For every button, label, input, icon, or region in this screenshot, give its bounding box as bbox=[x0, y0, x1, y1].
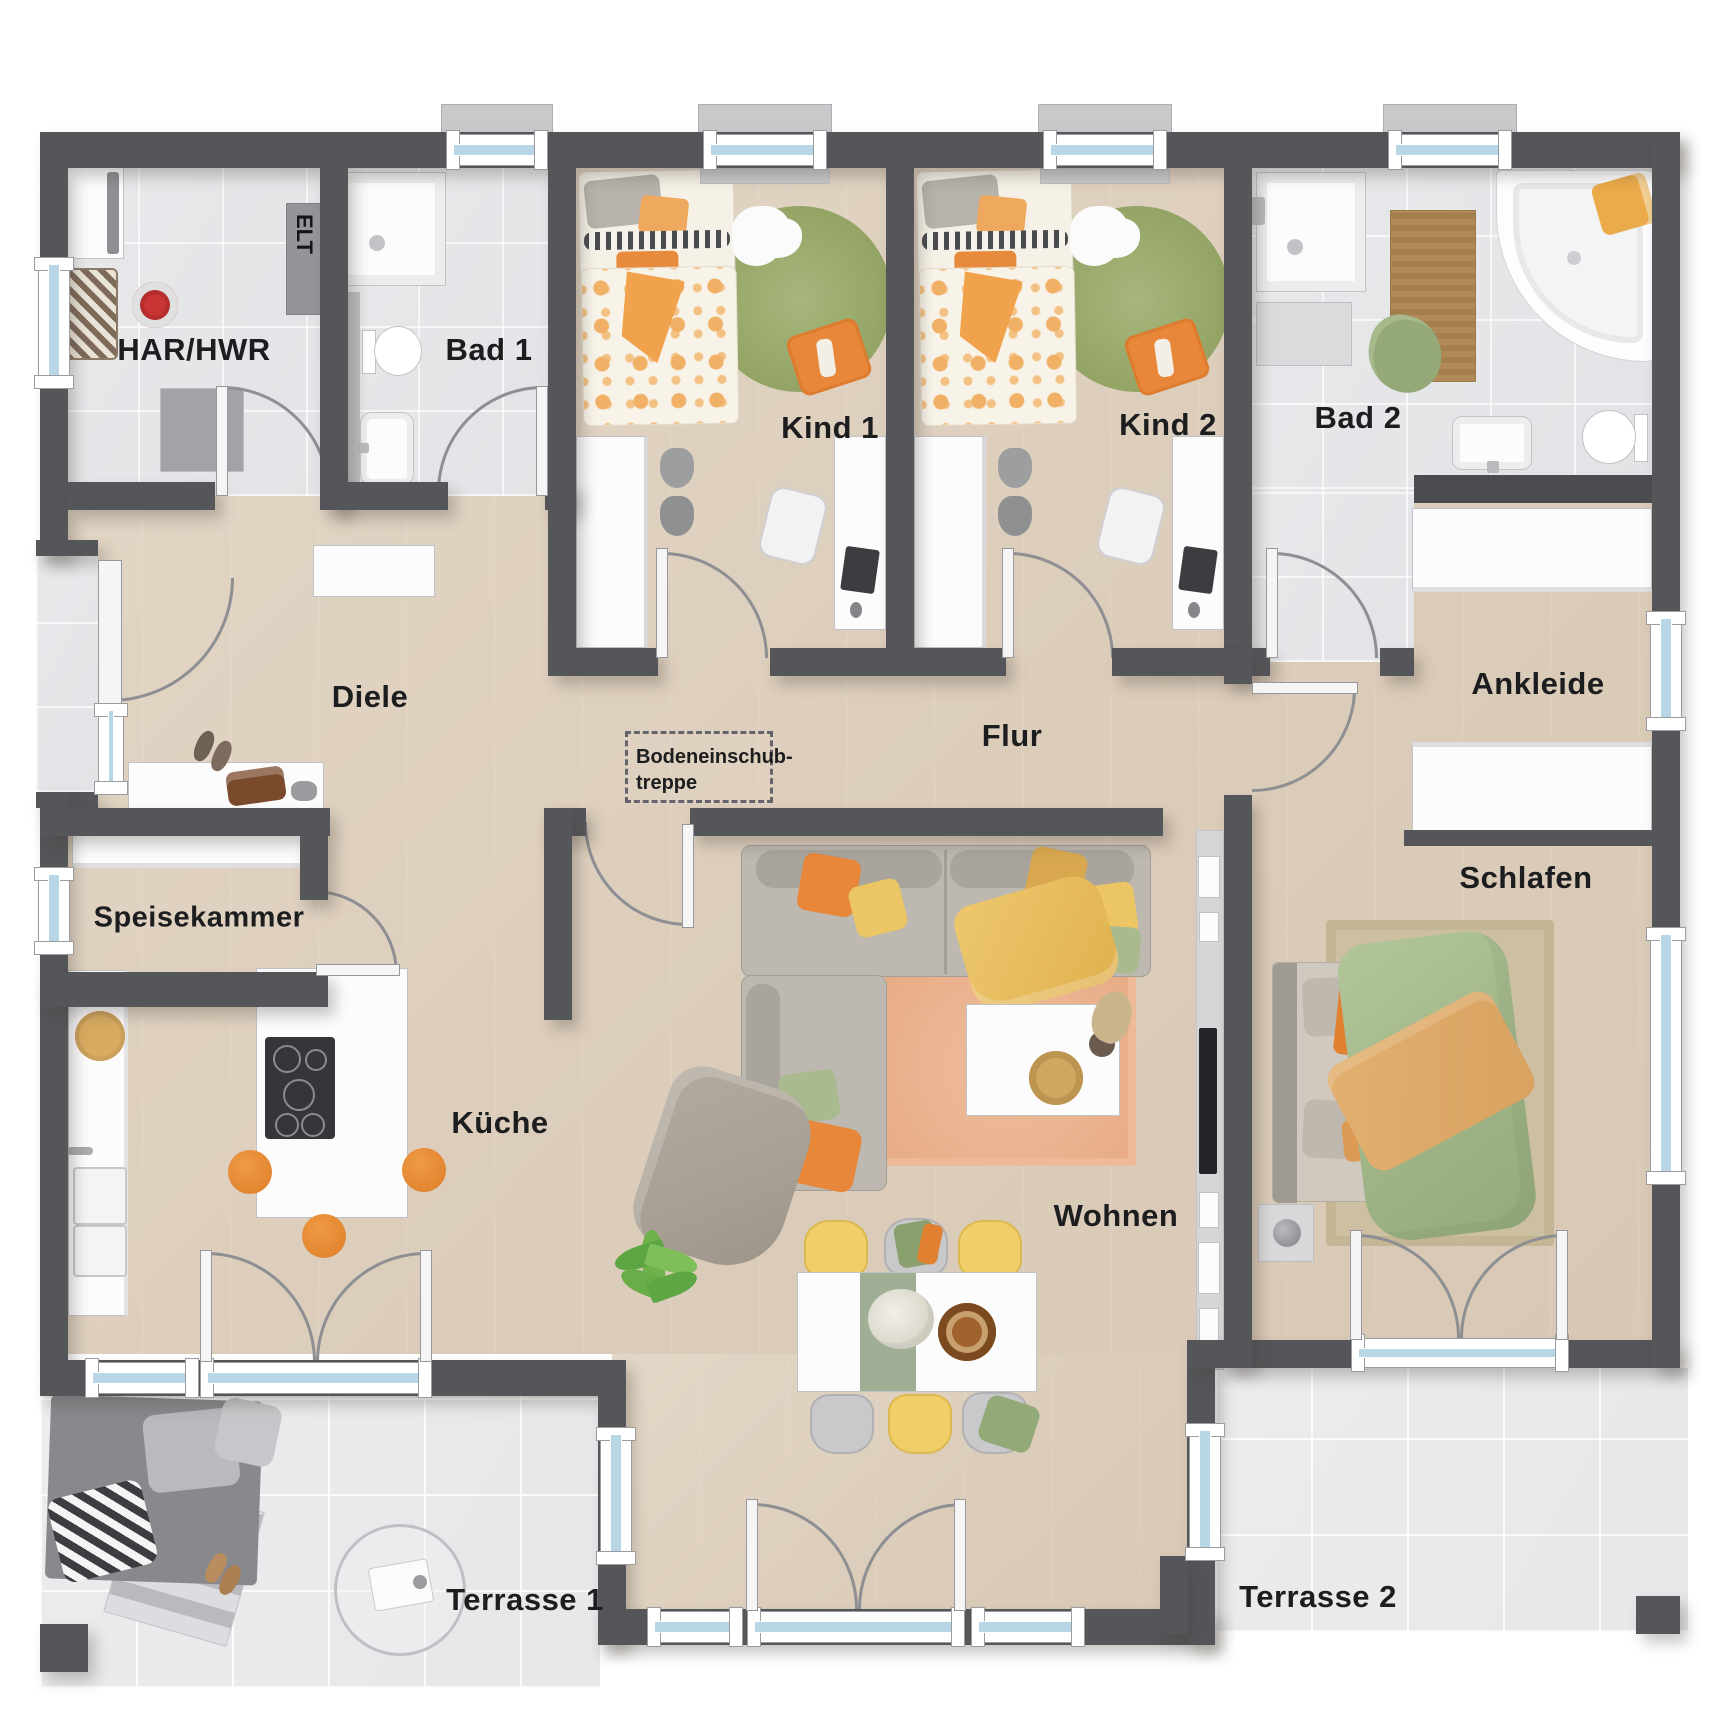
burner-icon bbox=[273, 1045, 301, 1073]
window bbox=[447, 134, 547, 166]
wall bbox=[1404, 830, 1652, 846]
hall-sideboard bbox=[128, 762, 324, 810]
bolster-pillow bbox=[584, 230, 730, 251]
door-leaf bbox=[420, 1250, 432, 1362]
decor-bowl bbox=[938, 1303, 996, 1361]
table-lamp bbox=[1273, 1219, 1301, 1247]
bar-stool-orange bbox=[302, 1214, 346, 1258]
bad2-shelf bbox=[1256, 302, 1352, 366]
room-label-bad-1: Bad 1 bbox=[446, 332, 533, 368]
shelf-decor bbox=[1199, 1192, 1219, 1228]
door-leaf bbox=[1350, 1230, 1362, 1340]
door-leaf bbox=[954, 1499, 966, 1611]
coffee-table bbox=[966, 1004, 1120, 1116]
wall bbox=[1224, 795, 1252, 1368]
gold-tray bbox=[1029, 1051, 1083, 1105]
wall bbox=[36, 540, 98, 556]
desk-kind2 bbox=[1172, 436, 1224, 630]
shelf-decor bbox=[1199, 912, 1219, 942]
window bbox=[648, 1611, 742, 1643]
red-bucket bbox=[132, 282, 178, 328]
wall bbox=[1636, 1596, 1680, 1634]
french-door-glazing bbox=[748, 1611, 964, 1643]
wall bbox=[40, 1624, 88, 1672]
door-leaf bbox=[1252, 682, 1358, 694]
dining-chair-yellow bbox=[958, 1220, 1022, 1278]
attic-stairs-box: Bodeneinschub- treppe bbox=[625, 731, 773, 803]
toy-doll bbox=[1154, 338, 1175, 378]
door-leaf bbox=[536, 386, 548, 496]
shower bbox=[1256, 172, 1366, 292]
outdoor-pillow bbox=[212, 1396, 284, 1469]
window bbox=[1650, 928, 1682, 1184]
outdoor-daybed bbox=[45, 1394, 263, 1585]
window bbox=[38, 258, 70, 388]
room-label-wohnen: Wohnen bbox=[1054, 1198, 1179, 1234]
wall bbox=[1380, 648, 1414, 676]
window bbox=[1189, 1424, 1221, 1560]
room-label-diele: Diele bbox=[332, 679, 409, 715]
sofa-seat-split bbox=[944, 850, 947, 974]
keyboard bbox=[840, 546, 880, 594]
washbasin bbox=[360, 412, 414, 486]
burner-icon bbox=[275, 1113, 299, 1137]
window-ledge bbox=[1040, 168, 1170, 184]
toy-doll bbox=[816, 338, 837, 378]
bad2-toilet bbox=[1582, 408, 1648, 466]
french-door-glazing bbox=[1352, 1338, 1568, 1368]
shoes bbox=[998, 448, 1032, 488]
window bbox=[1389, 134, 1511, 166]
burner-icon bbox=[301, 1113, 325, 1137]
dining-chair-gray bbox=[962, 1392, 1028, 1454]
mouse bbox=[1188, 602, 1200, 618]
wall bbox=[548, 168, 576, 676]
shelf-decor bbox=[1198, 856, 1220, 898]
door-leaf bbox=[316, 964, 400, 976]
wardrobe-kind1 bbox=[576, 436, 648, 648]
window bbox=[1650, 612, 1682, 730]
window-sill bbox=[1383, 104, 1517, 134]
keyboard bbox=[1178, 546, 1218, 594]
window bbox=[600, 1428, 632, 1564]
bad2-washbasin bbox=[1452, 416, 1532, 470]
headboard bbox=[1273, 963, 1297, 1203]
dining-table bbox=[797, 1272, 1037, 1392]
television bbox=[1199, 1028, 1217, 1174]
window bbox=[704, 134, 826, 166]
dining-chair-yellow bbox=[804, 1220, 868, 1278]
bar-stool-orange bbox=[228, 1150, 272, 1194]
nightstand bbox=[1258, 1204, 1314, 1262]
toilet bbox=[362, 326, 422, 376]
window bbox=[38, 868, 70, 954]
room-label-flur: Flur bbox=[982, 718, 1043, 754]
entry-sidelight bbox=[98, 704, 124, 794]
dining-chair-gray bbox=[810, 1394, 874, 1454]
entry-door-leaf bbox=[98, 560, 122, 704]
door-leaf bbox=[200, 1250, 212, 1362]
room-label-terrasse-1: Terrasse 1 bbox=[446, 1582, 604, 1618]
room-label-schlafen: Schlafen bbox=[1459, 860, 1592, 896]
wall bbox=[300, 836, 328, 900]
dining-chair-yellow bbox=[888, 1394, 952, 1454]
bed-kind2 bbox=[916, 169, 1076, 426]
tub-drain-icon bbox=[1567, 251, 1581, 265]
wall bbox=[544, 808, 572, 1020]
keys-decor bbox=[291, 781, 317, 801]
toilet-bowl bbox=[374, 326, 422, 376]
wall bbox=[690, 808, 1163, 836]
door-leaf bbox=[746, 1499, 758, 1611]
shower bbox=[336, 172, 446, 286]
door-leaf bbox=[682, 824, 694, 928]
window-sill bbox=[1038, 104, 1172, 134]
washer-drum-icon bbox=[107, 172, 119, 254]
laundry-basket bbox=[64, 268, 118, 360]
faucet-icon bbox=[1487, 461, 1499, 473]
wall bbox=[68, 482, 215, 510]
kitchen-counter-left bbox=[68, 970, 128, 1316]
striped-pillow bbox=[46, 1478, 160, 1585]
toilet-cistern bbox=[1634, 414, 1648, 462]
door-leaf bbox=[216, 386, 228, 496]
shower-drain-icon bbox=[369, 235, 385, 251]
sh ower-drain-icon bbox=[1287, 239, 1303, 255]
wall bbox=[886, 168, 914, 648]
elt-cabinet: ELT bbox=[286, 203, 322, 315]
bad2-vanity-wall bbox=[1414, 475, 1652, 503]
window-ledge bbox=[700, 168, 830, 184]
window-sill bbox=[698, 104, 832, 134]
window bbox=[86, 1362, 198, 1394]
shelf-decor bbox=[1198, 1242, 1220, 1294]
door-leaf bbox=[1556, 1230, 1568, 1340]
window bbox=[972, 1611, 1084, 1643]
room-label-kind-1: Kind 1 bbox=[781, 410, 879, 446]
hall-bench bbox=[313, 545, 435, 597]
room-label-bad-2: Bad 2 bbox=[1315, 400, 1402, 436]
potted-plant bbox=[608, 1228, 700, 1324]
room-label-speisekammer: Speisekammer bbox=[94, 902, 305, 935]
wardrobe-bottom bbox=[1412, 742, 1652, 832]
desk-kind1 bbox=[834, 436, 886, 630]
wall bbox=[330, 482, 448, 510]
room-label-har-hwr: HAR/HWR bbox=[117, 332, 270, 368]
kitchen-sink bbox=[73, 1225, 127, 1277]
room-label-terrasse-2: Terrasse 2 bbox=[1239, 1579, 1397, 1615]
floor-plan: ELT bbox=[0, 0, 1718, 1718]
handbag bbox=[225, 765, 287, 807]
shower-fitting-icon bbox=[1251, 197, 1265, 225]
dining-chair-gray bbox=[884, 1218, 948, 1276]
wall bbox=[1224, 168, 1252, 648]
faucet-icon bbox=[357, 443, 369, 453]
cooktop bbox=[265, 1037, 335, 1139]
room-label-kueche: Küche bbox=[451, 1105, 548, 1141]
wardrobe-kind2 bbox=[914, 436, 986, 648]
room-label-ankleide: Ankleide bbox=[1471, 666, 1604, 702]
wall bbox=[320, 168, 348, 510]
flower-bouquet bbox=[868, 1289, 934, 1349]
burner-icon bbox=[283, 1079, 315, 1111]
wall bbox=[40, 972, 328, 1007]
bar-stool-orange bbox=[402, 1148, 446, 1192]
fruit-bowl bbox=[75, 1011, 125, 1061]
french-door-glazing bbox=[201, 1362, 431, 1394]
burner-icon bbox=[305, 1049, 327, 1071]
window bbox=[1044, 134, 1166, 166]
bed-kind1 bbox=[578, 169, 738, 426]
door-leaf bbox=[1266, 548, 1278, 658]
wall bbox=[1224, 648, 1252, 684]
toilet-bowl bbox=[1582, 410, 1636, 464]
faucet-icon bbox=[67, 1147, 93, 1155]
wall bbox=[40, 808, 330, 836]
wall bbox=[1160, 1556, 1188, 1634]
bolster-pillow bbox=[922, 230, 1068, 251]
door-leaf bbox=[656, 548, 668, 658]
wall bbox=[576, 648, 658, 676]
door-leaf bbox=[1002, 548, 1014, 658]
shoes bbox=[660, 448, 694, 488]
kitchen-sink bbox=[73, 1167, 127, 1225]
cup bbox=[413, 1575, 427, 1589]
room-label-kind-2: Kind 2 bbox=[1119, 407, 1217, 443]
attic-stairs-label: Bodeneinschub- treppe bbox=[636, 744, 793, 796]
washing-machine bbox=[64, 165, 124, 259]
mouse bbox=[850, 602, 862, 618]
wardrobe-top bbox=[1412, 508, 1652, 592]
wall bbox=[770, 648, 1006, 676]
elt-label: ELT bbox=[291, 214, 317, 254]
entry-porch-tiles bbox=[36, 556, 98, 792]
